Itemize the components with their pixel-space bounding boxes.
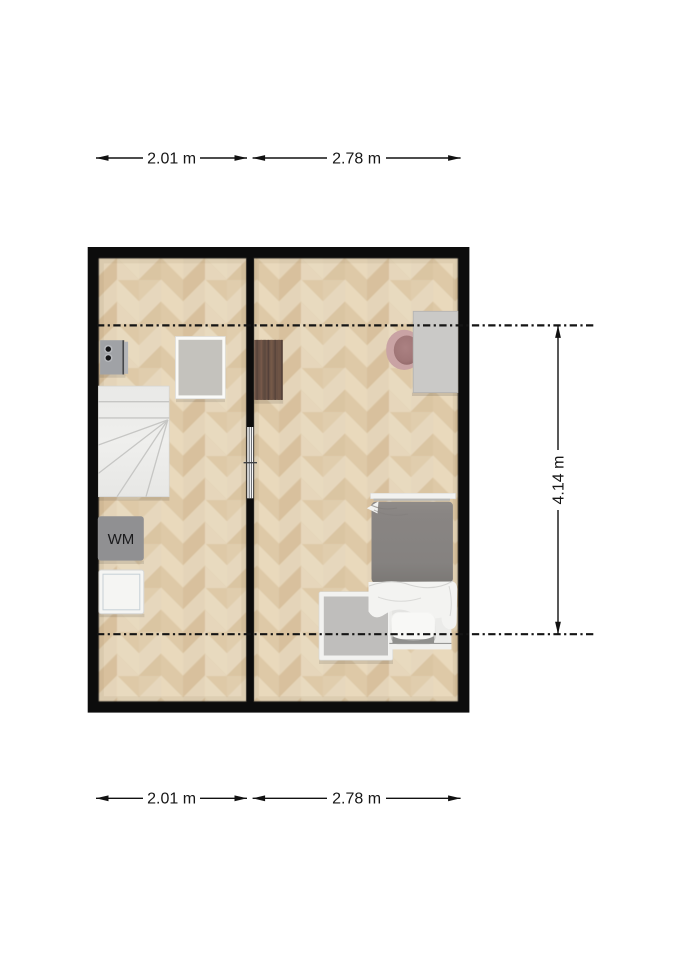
svg-text:2.01 m: 2.01 m: [147, 150, 196, 167]
svg-text:2.01 m: 2.01 m: [147, 791, 196, 808]
svg-text:WM: WM: [108, 531, 135, 548]
svg-text:4.14 m: 4.14 m: [550, 456, 567, 505]
svg-text:2.78 m: 2.78 m: [332, 150, 381, 167]
svg-text:2.78 m: 2.78 m: [332, 791, 381, 808]
